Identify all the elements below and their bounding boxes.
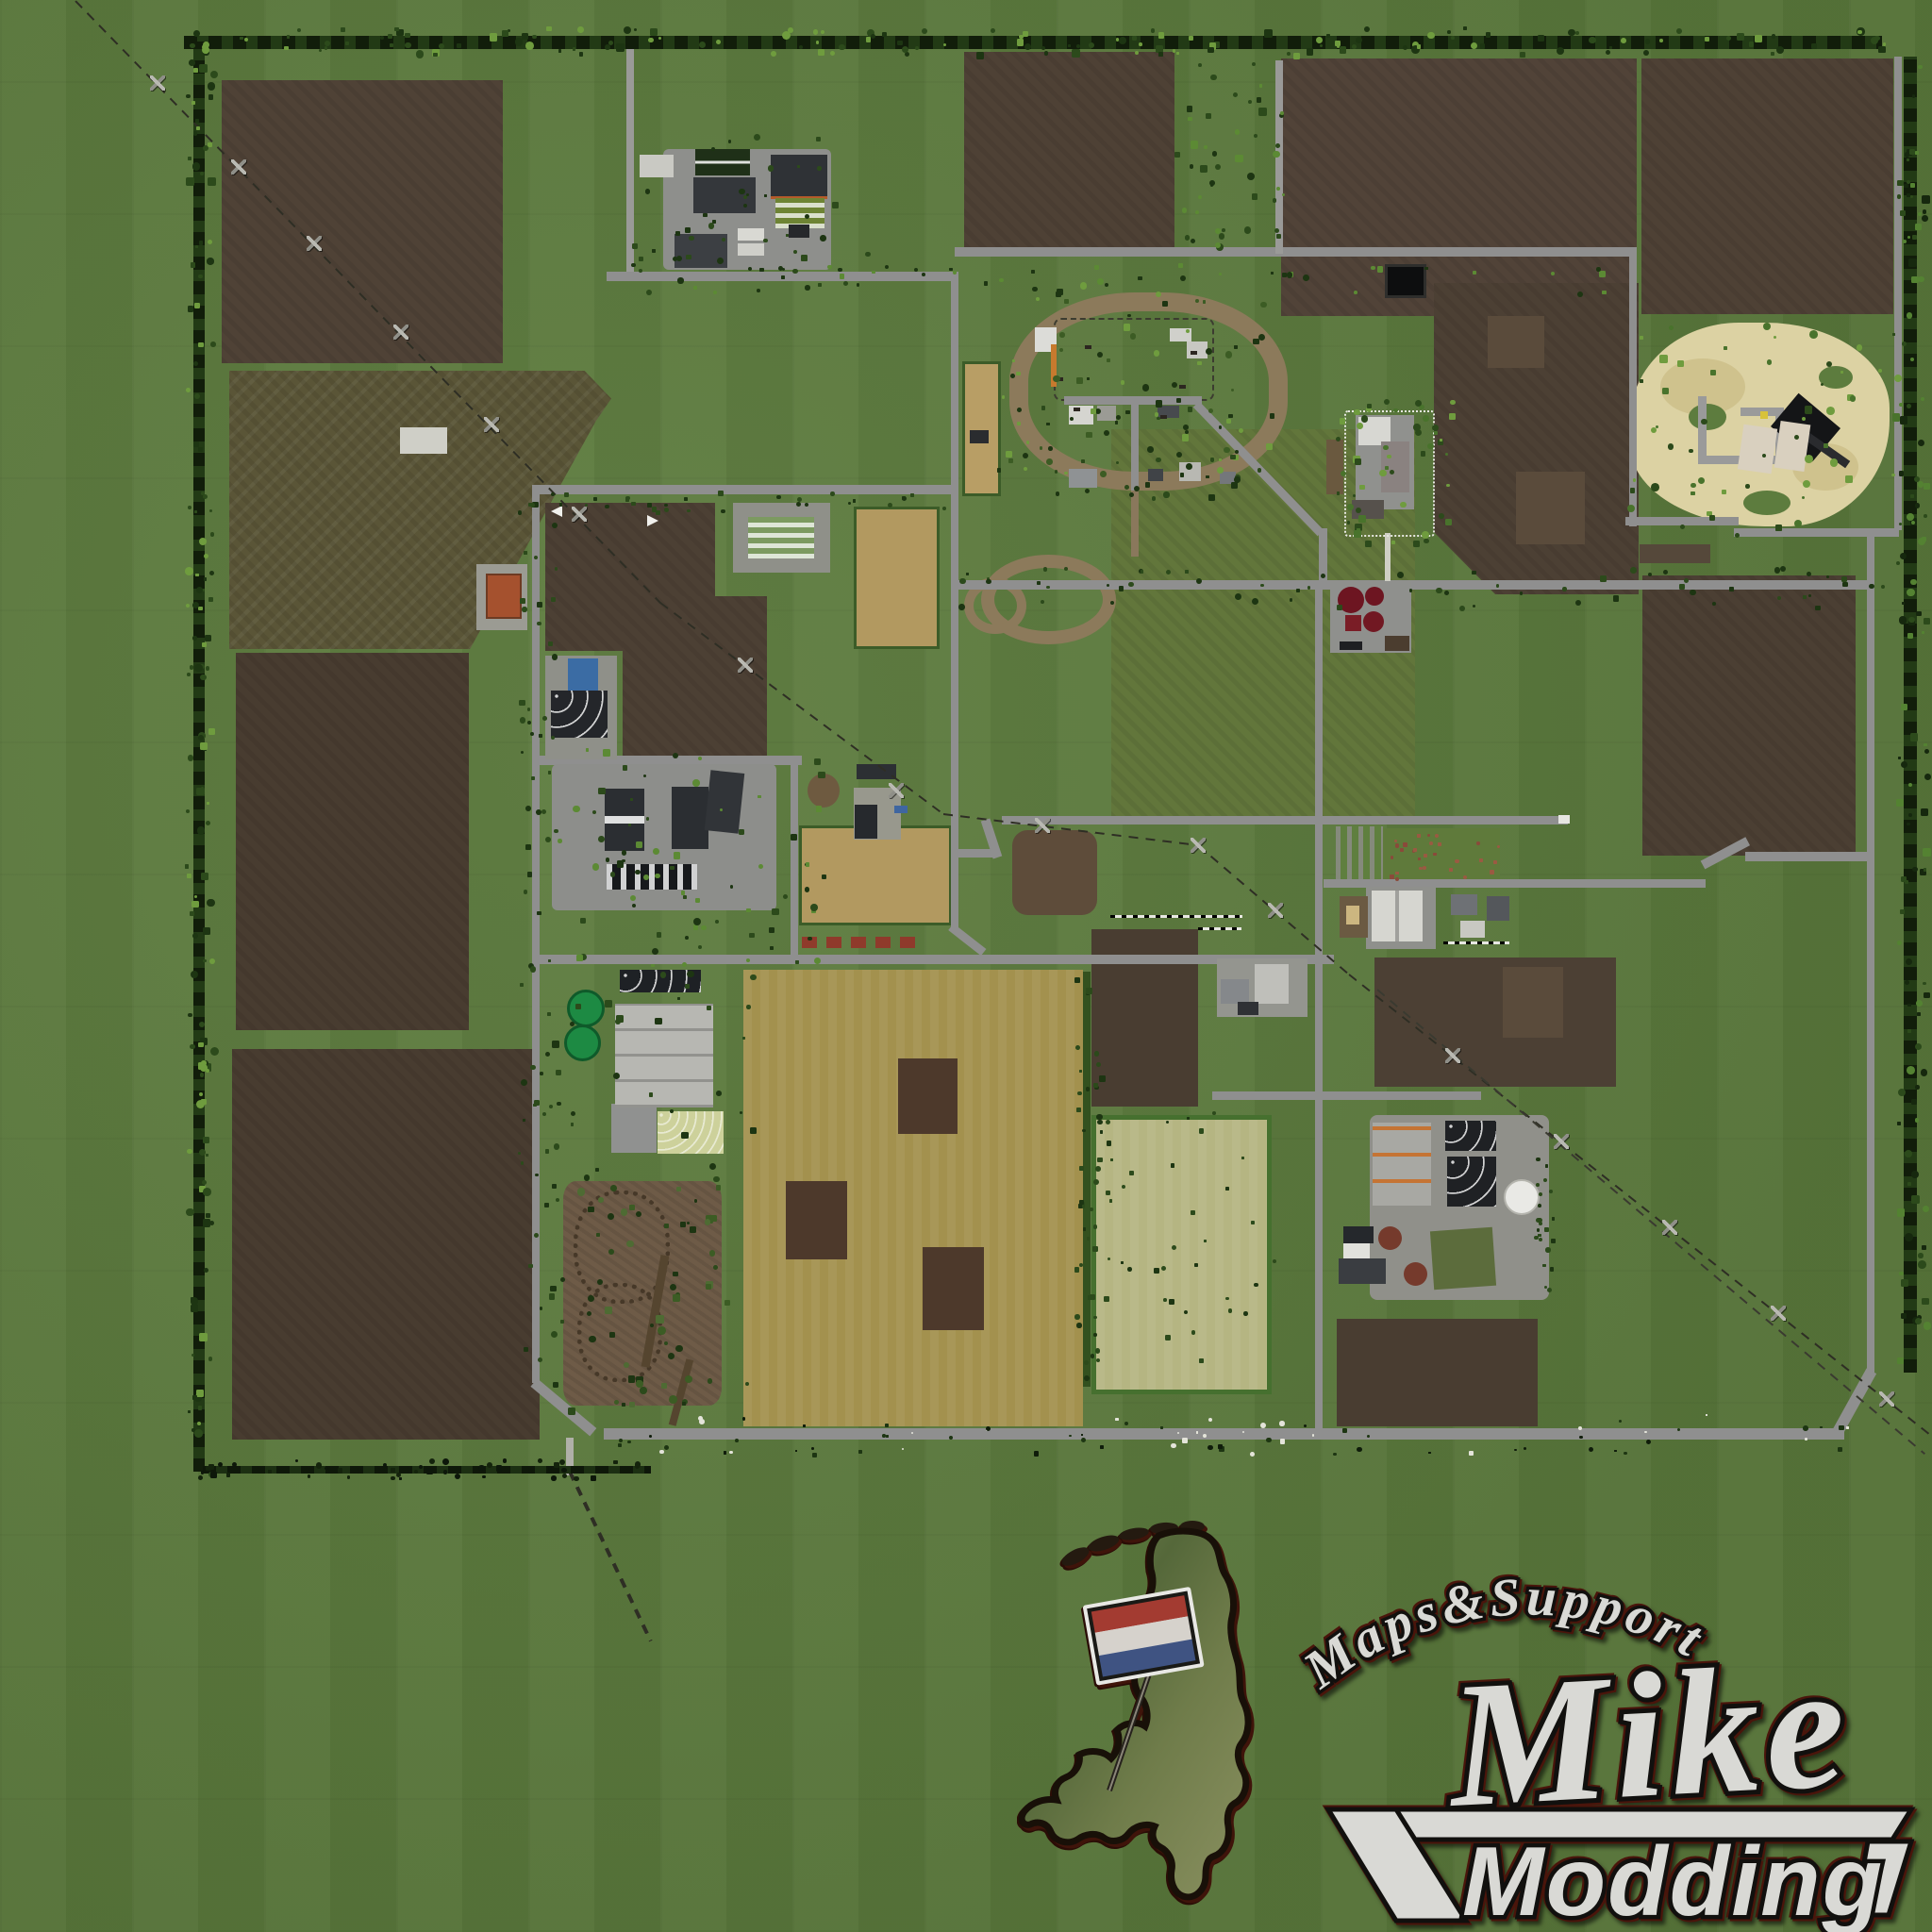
fb-blue-car — [894, 806, 908, 813]
tree-speckle — [542, 716, 547, 721]
road-h937-east — [1745, 852, 1871, 861]
tree-speckle — [1391, 541, 1395, 544]
tree-speckle — [1347, 504, 1354, 510]
tree-speckle — [658, 37, 661, 40]
tree-speckle — [196, 1390, 203, 1396]
tree-speckle — [1188, 407, 1193, 412]
tree-speckle — [577, 26, 583, 32]
tree-speckle — [1293, 53, 1300, 59]
tree-speckle — [1907, 823, 1909, 825]
tree-speckle — [199, 538, 207, 545]
tree-speckle — [1624, 1452, 1627, 1456]
trees-top-boundary — [189, 26, 1887, 53]
tree-speckle — [832, 202, 839, 208]
tree-speckle — [522, 607, 526, 611]
tree-speckle — [554, 829, 558, 834]
tree-speckle — [872, 271, 875, 275]
tree-speckle — [1679, 584, 1685, 590]
tree-speckle — [858, 1450, 862, 1454]
tree-speckle — [1081, 1438, 1086, 1442]
tree-speckle — [1621, 38, 1626, 43]
tree-speckle — [1127, 314, 1131, 318]
tree-speckle — [1423, 415, 1429, 422]
tree-speckle — [605, 1000, 612, 1008]
tree-speckle — [1116, 461, 1119, 464]
tree-speckle — [240, 37, 242, 40]
tree-speckle — [649, 1092, 653, 1096]
tree-speckle — [490, 33, 497, 41]
tree-speckle — [1124, 1422, 1128, 1425]
tree-speckle — [1359, 485, 1365, 491]
tree-speckle — [524, 890, 528, 894]
tree-speckle — [1551, 272, 1555, 275]
tree-speckle — [770, 946, 774, 950]
tree-speckle — [186, 1208, 194, 1217]
tree-speckle — [204, 1268, 208, 1273]
tree-speckle — [405, 33, 409, 38]
tree-speckle — [1915, 503, 1921, 508]
tree-speckle — [1225, 1297, 1229, 1301]
tree-speckle — [1234, 345, 1238, 349]
tree-speckle — [345, 42, 350, 46]
tree-speckle — [677, 997, 680, 1000]
tree-speckle — [1228, 414, 1233, 419]
tree-speckle — [550, 1286, 557, 1292]
tree-speckle — [1839, 1425, 1844, 1431]
tree-speckle — [527, 708, 531, 711]
tree-speckle — [457, 43, 461, 48]
tree-speckle — [653, 848, 659, 855]
tree-speckle — [1198, 63, 1202, 67]
sf-slurry-1 — [1378, 1226, 1402, 1250]
tree-speckle — [226, 1473, 230, 1476]
tree-speckle — [1115, 1418, 1119, 1422]
tree-speckle — [187, 874, 192, 878]
tree-speckle — [1536, 1183, 1540, 1187]
tree-speckle — [1689, 449, 1692, 453]
tree-speckle — [194, 510, 197, 513]
tree-speckle — [613, 1073, 620, 1079]
tree-speckle — [192, 636, 196, 640]
tree-speckle — [711, 147, 715, 151]
tree-speckle — [1422, 531, 1429, 539]
tree-speckle — [1275, 143, 1280, 148]
tree-speckle — [1413, 424, 1421, 431]
tree-speckle — [1724, 346, 1727, 350]
pylon — [393, 325, 408, 340]
market-stall-4 — [875, 937, 891, 948]
tree-speckle — [675, 231, 680, 236]
tree-speckle — [1397, 572, 1404, 578]
tree-speckle — [1304, 1424, 1307, 1427]
tree-speckle — [716, 40, 721, 44]
wheat-shed-3 — [923, 1247, 984, 1330]
tree-speckle — [624, 1362, 629, 1368]
tree-speckle — [811, 1447, 814, 1450]
tree-speckle — [558, 839, 562, 843]
tree-speckle — [208, 1357, 212, 1360]
tree-speckle — [1212, 151, 1217, 156]
tree-speckle — [1896, 561, 1900, 565]
tree-speckle — [1428, 1452, 1430, 1454]
tree-speckle — [1228, 1308, 1232, 1312]
tree-speckle — [1924, 483, 1930, 490]
tree-speckle — [1826, 575, 1829, 578]
tree-speckle — [1377, 266, 1384, 273]
tree-speckle — [670, 866, 675, 871]
village-house-2 — [1487, 896, 1509, 921]
tree-speckle — [1290, 598, 1293, 602]
tree-speckle — [664, 1445, 669, 1450]
tree-speckle — [1196, 1431, 1199, 1434]
tree-speckle — [677, 277, 683, 283]
tree-speckle — [1514, 1449, 1517, 1452]
tree-speckle — [1195, 210, 1199, 214]
tree-speckle — [547, 1012, 551, 1016]
tree-speckle — [1077, 1091, 1082, 1096]
tree-speckle — [1921, 397, 1924, 401]
netherlands-map-shape — [1022, 1521, 1248, 1897]
tree-speckle — [750, 974, 756, 980]
tree-speckle — [1589, 37, 1595, 43]
tree-speckle — [1539, 1238, 1543, 1242]
tree-speckle — [776, 495, 780, 499]
tree-speckle — [1094, 265, 1099, 270]
field-d7 — [1337, 1319, 1538, 1426]
trees-pale-border — [1085, 1106, 1274, 1393]
tree-speckle — [391, 1468, 395, 1473]
tree-speckle — [1690, 491, 1694, 495]
tree-speckle — [1087, 377, 1090, 380]
tree-speckle — [1910, 183, 1915, 188]
tree-speckle — [1923, 209, 1927, 214]
tree-speckle — [525, 844, 531, 850]
tree-speckle — [1187, 1117, 1190, 1120]
tree-speckle — [538, 1357, 542, 1362]
tree-speckle — [959, 578, 965, 584]
tree-speckle — [1132, 36, 1137, 41]
tree-speckle — [1074, 1267, 1080, 1273]
tree-speckle — [1899, 616, 1907, 625]
tree-speckle — [1698, 477, 1705, 484]
tree-speckle — [455, 1474, 461, 1480]
tree-speckle — [1898, 1089, 1906, 1096]
tree-speckle — [1902, 602, 1905, 605]
tree-speckle — [1914, 476, 1920, 482]
tree-speckle — [196, 126, 200, 130]
tree-speckle — [793, 250, 797, 254]
tree-speckle — [635, 1461, 641, 1467]
tree-speckle — [658, 1326, 666, 1335]
tree-speckle — [1684, 578, 1689, 583]
tree-speckle — [1064, 299, 1069, 304]
tree-speckle — [193, 441, 200, 448]
market-stall-3 — [851, 937, 866, 948]
tree-speckle — [1807, 572, 1811, 576]
tree-speckle — [1878, 46, 1885, 53]
sf-slurry-2 — [1404, 1262, 1427, 1286]
tree-speckle — [629, 1205, 635, 1210]
tree-speckle — [1086, 988, 1092, 994]
tree-speckle — [742, 1037, 746, 1041]
tree-speckle — [188, 1013, 192, 1017]
watermark-logo: Maps&Support Mike Modding — [1017, 1515, 1932, 1932]
tree-speckle — [1158, 52, 1162, 56]
tree-speckle — [1017, 408, 1022, 412]
tree-speckle — [1307, 586, 1310, 589]
tree-speckle — [795, 960, 799, 964]
tree-speckle — [629, 1402, 635, 1407]
tree-speckle — [1076, 377, 1083, 384]
tree-speckle — [196, 788, 205, 796]
tree-speckle — [1191, 141, 1199, 149]
tree-speckle — [554, 1143, 560, 1150]
tree-speckle — [827, 265, 832, 270]
tree-speckle — [1589, 1447, 1593, 1452]
tree-speckle — [739, 829, 744, 835]
tree-speckle — [1490, 870, 1494, 874]
tree-speckle — [1907, 1004, 1911, 1008]
tree-speckle — [1367, 404, 1372, 408]
tree-speckle — [1139, 42, 1142, 46]
tree-speckle — [1911, 1171, 1919, 1178]
tree-speckle — [1273, 198, 1277, 203]
tree-speckle — [192, 1395, 196, 1399]
tree-speckle — [1260, 302, 1267, 308]
field-top-left — [222, 80, 503, 363]
tree-speckle — [1606, 50, 1610, 55]
tree-speckle — [1260, 584, 1263, 587]
tree-speckle — [1316, 37, 1323, 43]
trees-h620 — [958, 566, 1883, 606]
tree-speckle — [1207, 1445, 1213, 1451]
tree-speckle — [1130, 333, 1136, 339]
tree-speckle — [1195, 299, 1199, 303]
tree-speckle — [1218, 1444, 1223, 1449]
tree-speckle — [503, 1458, 508, 1463]
tree-speckle — [1668, 443, 1674, 449]
tree-speckle — [530, 966, 537, 973]
tree-speckle — [1794, 520, 1802, 527]
tree-speckle — [1340, 418, 1346, 425]
tree-speckle — [194, 1429, 203, 1438]
tree-speckle — [1722, 490, 1726, 494]
tree-speckle — [199, 1022, 205, 1027]
tree-speckle — [1124, 485, 1129, 490]
tree-speckle — [1333, 1453, 1336, 1456]
tree-speckle — [1076, 44, 1080, 48]
tree-speckle — [1710, 370, 1716, 375]
tree-speckle — [1578, 1426, 1582, 1430]
tree-speckle — [1918, 65, 1922, 69]
trees-c1-top — [528, 491, 962, 511]
tree-speckle — [1182, 1438, 1188, 1443]
tree-speckle — [1493, 860, 1497, 864]
tree-speckle — [1235, 450, 1239, 454]
tree-speckle — [608, 41, 614, 46]
tree-speckle — [1243, 1311, 1247, 1315]
tree-speckle — [1178, 263, 1183, 268]
tree-speckle — [1924, 1322, 1931, 1329]
tree-speckle — [1745, 484, 1749, 488]
tree-speckle — [551, 736, 555, 740]
tree-speckle — [1659, 39, 1663, 42]
tree-speckle — [882, 32, 888, 38]
tree-speckle — [1680, 525, 1685, 529]
tree-speckle — [1096, 1062, 1101, 1067]
tree-speckle — [698, 945, 702, 949]
tree-speckle — [577, 1188, 585, 1195]
tree-speckle — [670, 1109, 674, 1113]
tree-speckle — [1763, 323, 1771, 330]
tree-speckle — [1662, 388, 1669, 394]
tree-speckle — [1538, 35, 1544, 42]
tree-speckle — [1235, 129, 1241, 135]
tree-speckle — [1640, 336, 1643, 340]
tree-speckle — [205, 635, 211, 641]
tree-speckle — [1152, 496, 1156, 500]
tree-speckle — [1340, 46, 1347, 54]
tree-speckle — [1451, 36, 1455, 40]
field-top-right — [1641, 58, 1893, 314]
tree-speckle — [1166, 1121, 1169, 1124]
tree-speckle — [722, 238, 725, 241]
tree-speckle — [771, 51, 776, 57]
tree-speckle — [1915, 1085, 1919, 1089]
tree-speckle — [1384, 399, 1390, 405]
tree-speckle — [1347, 521, 1351, 525]
tree-speckle — [1188, 117, 1192, 122]
tree-speckle — [521, 1161, 525, 1165]
tree-speckle — [199, 241, 204, 245]
field-bottom-left-2 — [232, 1049, 540, 1440]
tree-speckle — [1250, 1452, 1255, 1457]
tree-speckle — [1455, 859, 1459, 864]
tree-speckle — [1568, 29, 1574, 36]
tree-speckle — [482, 1475, 486, 1479]
tree-speckle — [1156, 458, 1160, 462]
blue-building — [568, 658, 598, 694]
tree-speckle — [716, 1185, 722, 1191]
tree-speckle — [199, 1149, 206, 1156]
tree-speckle — [524, 551, 526, 554]
tree-speckle — [685, 227, 691, 233]
tree-speckle — [209, 509, 212, 512]
tree-speckle — [805, 887, 809, 891]
tree-speckle — [1899, 1272, 1903, 1275]
tree-speckle — [1874, 36, 1880, 42]
tree-speckle — [1069, 1435, 1071, 1437]
tree-speckle — [610, 872, 615, 876]
tree-speckle — [1690, 590, 1695, 595]
tree-speckle — [546, 26, 551, 31]
tree-speckle — [1557, 47, 1564, 55]
tree-speckle — [1320, 44, 1323, 47]
tree-speckle — [799, 45, 803, 49]
tree-nursery-rows — [1336, 826, 1383, 879]
se-building-3 — [1238, 1002, 1258, 1015]
tree-speckle — [1562, 587, 1566, 591]
tree-speckle — [527, 872, 532, 876]
tree-speckle — [692, 779, 700, 787]
tree-speckle — [1438, 842, 1441, 846]
tree-speckle — [1918, 538, 1926, 546]
tree-speckle — [624, 26, 631, 34]
field-d6-patch — [1503, 967, 1563, 1038]
tree-speckle — [698, 757, 702, 760]
tree-speckle — [703, 213, 707, 217]
tree-speckle — [1208, 1418, 1212, 1422]
tree-speckle — [519, 700, 525, 707]
tree-speckle — [1231, 482, 1238, 489]
village-house-3 — [1460, 921, 1485, 938]
tree-speckle — [1046, 586, 1049, 589]
tree-speckle — [1905, 1150, 1912, 1158]
tree-speckle — [639, 257, 643, 261]
tree-speckle — [693, 286, 697, 290]
tree-speckle — [1353, 494, 1356, 497]
tree-speckle — [1427, 443, 1434, 450]
tree-speckle — [713, 291, 717, 294]
tree-speckle — [897, 41, 902, 45]
tree-speckle — [196, 587, 203, 593]
tree-speckle — [1424, 267, 1427, 270]
tree-speckle — [1903, 240, 1907, 243]
tree-speckle — [1010, 374, 1015, 378]
tree-speckle — [1520, 591, 1523, 594]
tree-speckle — [186, 177, 194, 186]
tree-speckle — [820, 235, 825, 241]
tree-speckle — [605, 505, 609, 509]
tree-speckle — [1273, 1259, 1276, 1263]
tree-speckle — [1427, 834, 1430, 837]
tree-speckle — [1358, 515, 1366, 523]
tree-speckle — [801, 255, 807, 260]
tree-speckle — [966, 573, 969, 575]
tree-speckle — [1857, 30, 1862, 35]
tree-speckle — [1545, 1164, 1549, 1168]
tree-speckle — [622, 850, 627, 856]
tree-speckle — [209, 571, 214, 575]
tree-speckle — [871, 34, 875, 39]
tree-speckle — [218, 1462, 224, 1468]
tree-speckle — [1225, 1187, 1229, 1191]
tree-speckle — [207, 802, 209, 805]
tree-speckle — [1599, 271, 1606, 277]
tree-speckle — [1444, 591, 1449, 595]
tree-speckle — [1424, 539, 1429, 544]
tree-speckle — [1134, 486, 1140, 491]
tree-speckle — [598, 836, 605, 842]
tree-speckle — [1463, 875, 1467, 879]
tree-speckle — [1803, 480, 1810, 488]
tree-speckle — [1097, 278, 1104, 285]
field-tan-strip — [962, 361, 1001, 496]
tree-speckle — [1545, 1247, 1551, 1253]
tree-speckle — [635, 870, 640, 874]
tree-speckle — [206, 1213, 210, 1218]
tree-speckle — [1417, 44, 1422, 49]
tree-speckle — [1596, 267, 1601, 272]
tree-speckle — [1912, 235, 1917, 240]
tree-speckle — [1906, 958, 1912, 965]
tree-speckle — [192, 162, 200, 170]
tree-speckle — [210, 1047, 219, 1056]
tree-speckle — [1230, 455, 1236, 460]
tree-speckle — [1354, 291, 1357, 294]
tree-speckle — [534, 1100, 541, 1107]
tree-speckle — [1017, 422, 1021, 425]
